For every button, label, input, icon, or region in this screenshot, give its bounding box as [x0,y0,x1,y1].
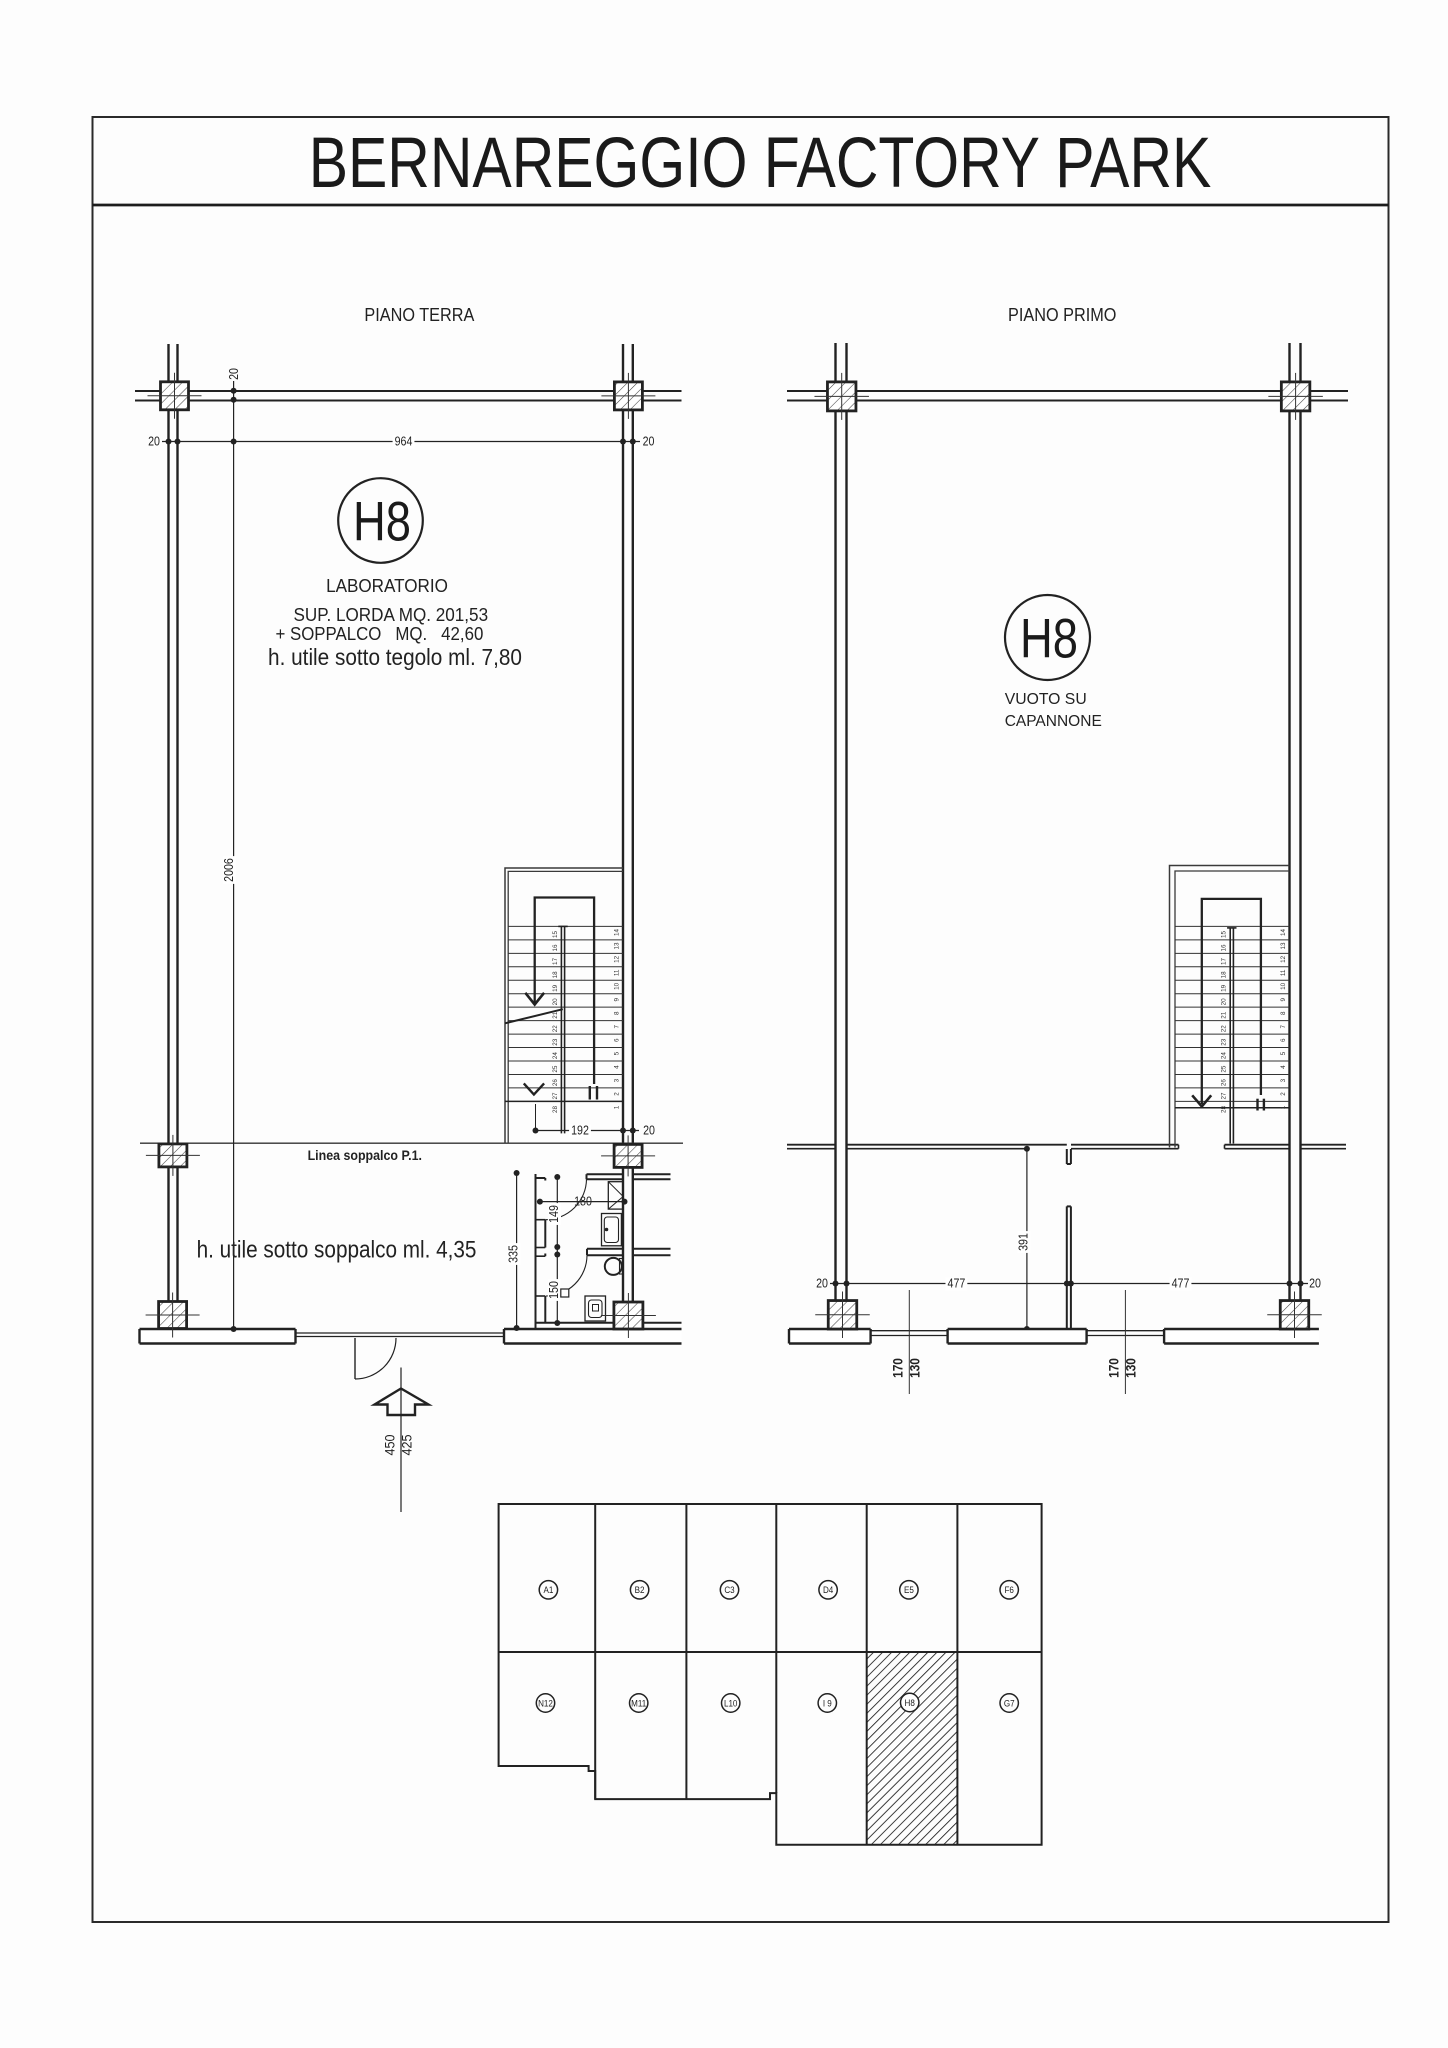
svg-text:149: 149 [546,1205,561,1223]
svg-text:21: 21 [1221,1011,1228,1019]
svg-text:CAPANNONE: CAPANNONE [1005,713,1102,730]
svg-text:17: 17 [1221,957,1228,965]
svg-text:PIANO PRIMO: PIANO PRIMO [1008,304,1116,325]
svg-text:130: 130 [907,1358,923,1378]
svg-text:11: 11 [1280,969,1287,976]
svg-text:VUOTO SU: VUOTO SU [1005,691,1087,708]
svg-text:20: 20 [226,368,241,380]
svg-text:12: 12 [1280,955,1287,963]
svg-text:21: 21 [552,1011,559,1019]
svg-text:2: 2 [1280,1092,1287,1096]
svg-text:A1: A1 [543,1585,553,1596]
svg-text:8: 8 [613,1011,620,1015]
svg-text:6: 6 [1280,1038,1287,1042]
svg-text:L10: L10 [724,1698,738,1709]
svg-text:14: 14 [1280,929,1287,937]
svg-text:13: 13 [613,942,620,950]
svg-text:964: 964 [395,434,413,449]
svg-text:D4: D4 [823,1585,833,1596]
svg-text:26: 26 [1221,1079,1228,1087]
svg-text:10: 10 [1280,982,1287,990]
svg-text:192: 192 [571,1123,589,1138]
svg-text:20: 20 [1309,1276,1321,1291]
svg-text:15: 15 [1221,931,1228,939]
svg-text:B2: B2 [635,1585,645,1596]
svg-text:LABORATORIO: LABORATORIO [326,575,448,596]
svg-text:425: 425 [399,1435,415,1456]
svg-text:18: 18 [1221,971,1228,979]
svg-text:3: 3 [613,1078,620,1082]
svg-text:15: 15 [552,931,559,939]
svg-text:20: 20 [816,1276,828,1291]
svg-text:19: 19 [552,984,559,992]
svg-text:M11: M11 [631,1698,646,1709]
svg-text:9: 9 [1280,998,1287,1002]
svg-text:Linea soppalco P.1.: Linea soppalco P.1. [308,1148,422,1164]
svg-text:2: 2 [613,1092,620,1096]
svg-text:23: 23 [1221,1038,1228,1046]
svg-text:7: 7 [1280,1024,1287,1028]
svg-text:150: 150 [546,1281,561,1299]
svg-text:25: 25 [1221,1065,1228,1073]
svg-text:N12: N12 [538,1698,553,1709]
svg-text:20: 20 [552,998,559,1006]
svg-text:130: 130 [1123,1358,1139,1378]
svg-text:14: 14 [613,929,620,937]
svg-text:G7: G7 [1004,1698,1015,1709]
svg-text:20: 20 [1221,998,1228,1006]
svg-text:4: 4 [1280,1065,1287,1069]
svg-text:4: 4 [613,1065,620,1069]
svg-text:10: 10 [613,982,620,990]
svg-text:PIANO TERRA: PIANO TERRA [364,304,474,325]
svg-text:h. utile sotto soppalco ml. 4,: h. utile sotto soppalco ml. 4,35 [197,1236,477,1263]
svg-text:28: 28 [552,1105,559,1113]
svg-text:18: 18 [552,971,559,979]
svg-text:477: 477 [948,1276,966,1291]
svg-text:E5: E5 [904,1585,914,1596]
svg-text:11: 11 [613,969,620,976]
svg-text:335: 335 [505,1245,520,1263]
svg-text:20: 20 [643,434,655,449]
svg-text:16: 16 [1221,944,1228,952]
svg-text:28: 28 [1221,1105,1228,1113]
svg-text:450: 450 [382,1435,398,1456]
svg-text:6: 6 [613,1038,620,1042]
svg-text:9: 9 [613,998,620,1002]
svg-text:12: 12 [613,955,620,963]
svg-text:8: 8 [1280,1011,1287,1015]
svg-text:17: 17 [552,957,559,965]
svg-text:19: 19 [1221,984,1228,992]
svg-text:24: 24 [552,1052,559,1060]
svg-text:5: 5 [613,1051,620,1055]
svg-text:5: 5 [1280,1051,1287,1055]
svg-text:7: 7 [613,1024,620,1028]
svg-text:20: 20 [148,434,160,449]
svg-text:20: 20 [643,1123,655,1138]
svg-text:H8: H8 [905,1697,915,1708]
svg-text:27: 27 [552,1092,559,1100]
svg-text:3: 3 [1280,1078,1287,1082]
svg-text:24: 24 [1221,1052,1228,1060]
svg-text:477: 477 [1172,1276,1190,1291]
svg-text:170: 170 [1106,1358,1122,1378]
svg-text:2006: 2006 [221,858,236,882]
svg-text:13: 13 [1280,942,1287,950]
svg-text:26: 26 [552,1079,559,1087]
svg-text:1: 1 [1280,1105,1287,1109]
svg-text:180: 180 [574,1194,592,1209]
svg-text:27: 27 [1221,1092,1228,1100]
svg-text:25: 25 [552,1065,559,1073]
svg-text:F6: F6 [1004,1585,1014,1596]
svg-text:391: 391 [1015,1233,1030,1251]
svg-text:23: 23 [552,1038,559,1046]
svg-text:C3: C3 [724,1585,734,1596]
svg-text:H8: H8 [353,490,411,553]
svg-text:I 9: I 9 [823,1698,832,1709]
svg-text:+ SOPPALCO MQ. 42,60: + SOPPALCO MQ. 42,60 [275,624,483,645]
svg-text:22: 22 [1221,1025,1228,1033]
svg-text:22: 22 [552,1025,559,1033]
svg-text:h. utile sotto tegolo ml. 7,80: h. utile sotto tegolo ml. 7,80 [268,644,522,670]
svg-text:H8: H8 [1020,607,1078,670]
svg-text:16: 16 [552,944,559,952]
svg-text:SUP. LORDA MQ. 201,53: SUP. LORDA MQ. 201,53 [294,604,489,625]
svg-text:1: 1 [613,1105,620,1109]
svg-text:170: 170 [890,1358,906,1378]
svg-text:BERNAREGGIO FACTORY PARK: BERNAREGGIO FACTORY PARK [309,123,1212,202]
